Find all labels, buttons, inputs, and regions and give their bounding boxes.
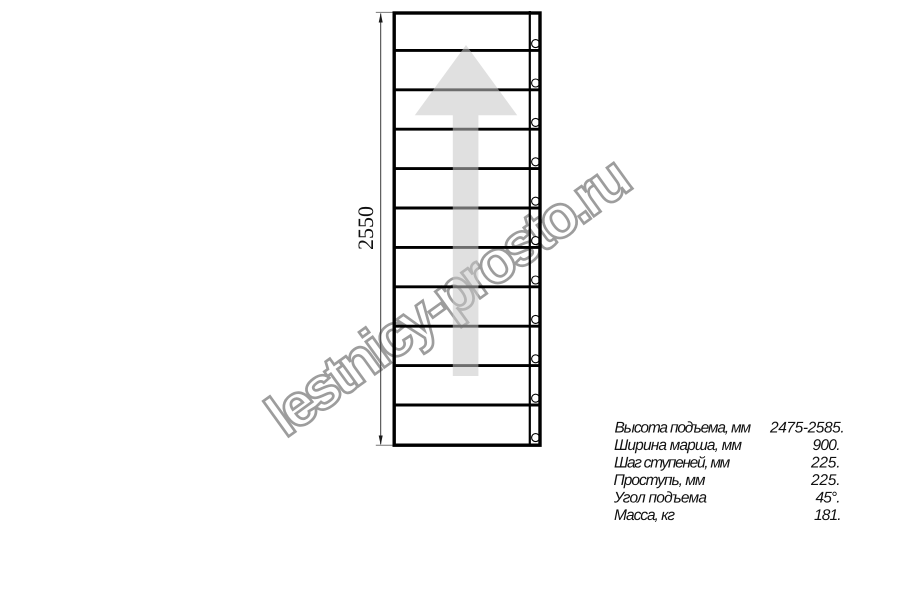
svg-text:2475-2585.: 2475-2585. [769, 419, 845, 436]
svg-text:181.: 181. [814, 507, 842, 524]
svg-text:Проступь, мм: Проступь, мм [614, 472, 706, 489]
svg-text:2550: 2550 [353, 206, 378, 250]
svg-text:Высота подъема, мм: Высота подъема, мм [615, 419, 752, 436]
svg-text:45°.: 45°. [816, 489, 841, 506]
svg-text:Угол подъема: Угол подъема [613, 489, 707, 506]
svg-text:900.: 900. [813, 437, 841, 454]
svg-text:225.: 225. [810, 454, 841, 471]
svg-text:Ширина марша, мм: Ширина марша, мм [614, 437, 742, 454]
svg-text:Масса, кг: Масса, кг [614, 507, 675, 524]
svg-text:225.: 225. [810, 472, 841, 489]
svg-text:Шаг ступеней, мм: Шаг ступеней, мм [614, 454, 731, 471]
